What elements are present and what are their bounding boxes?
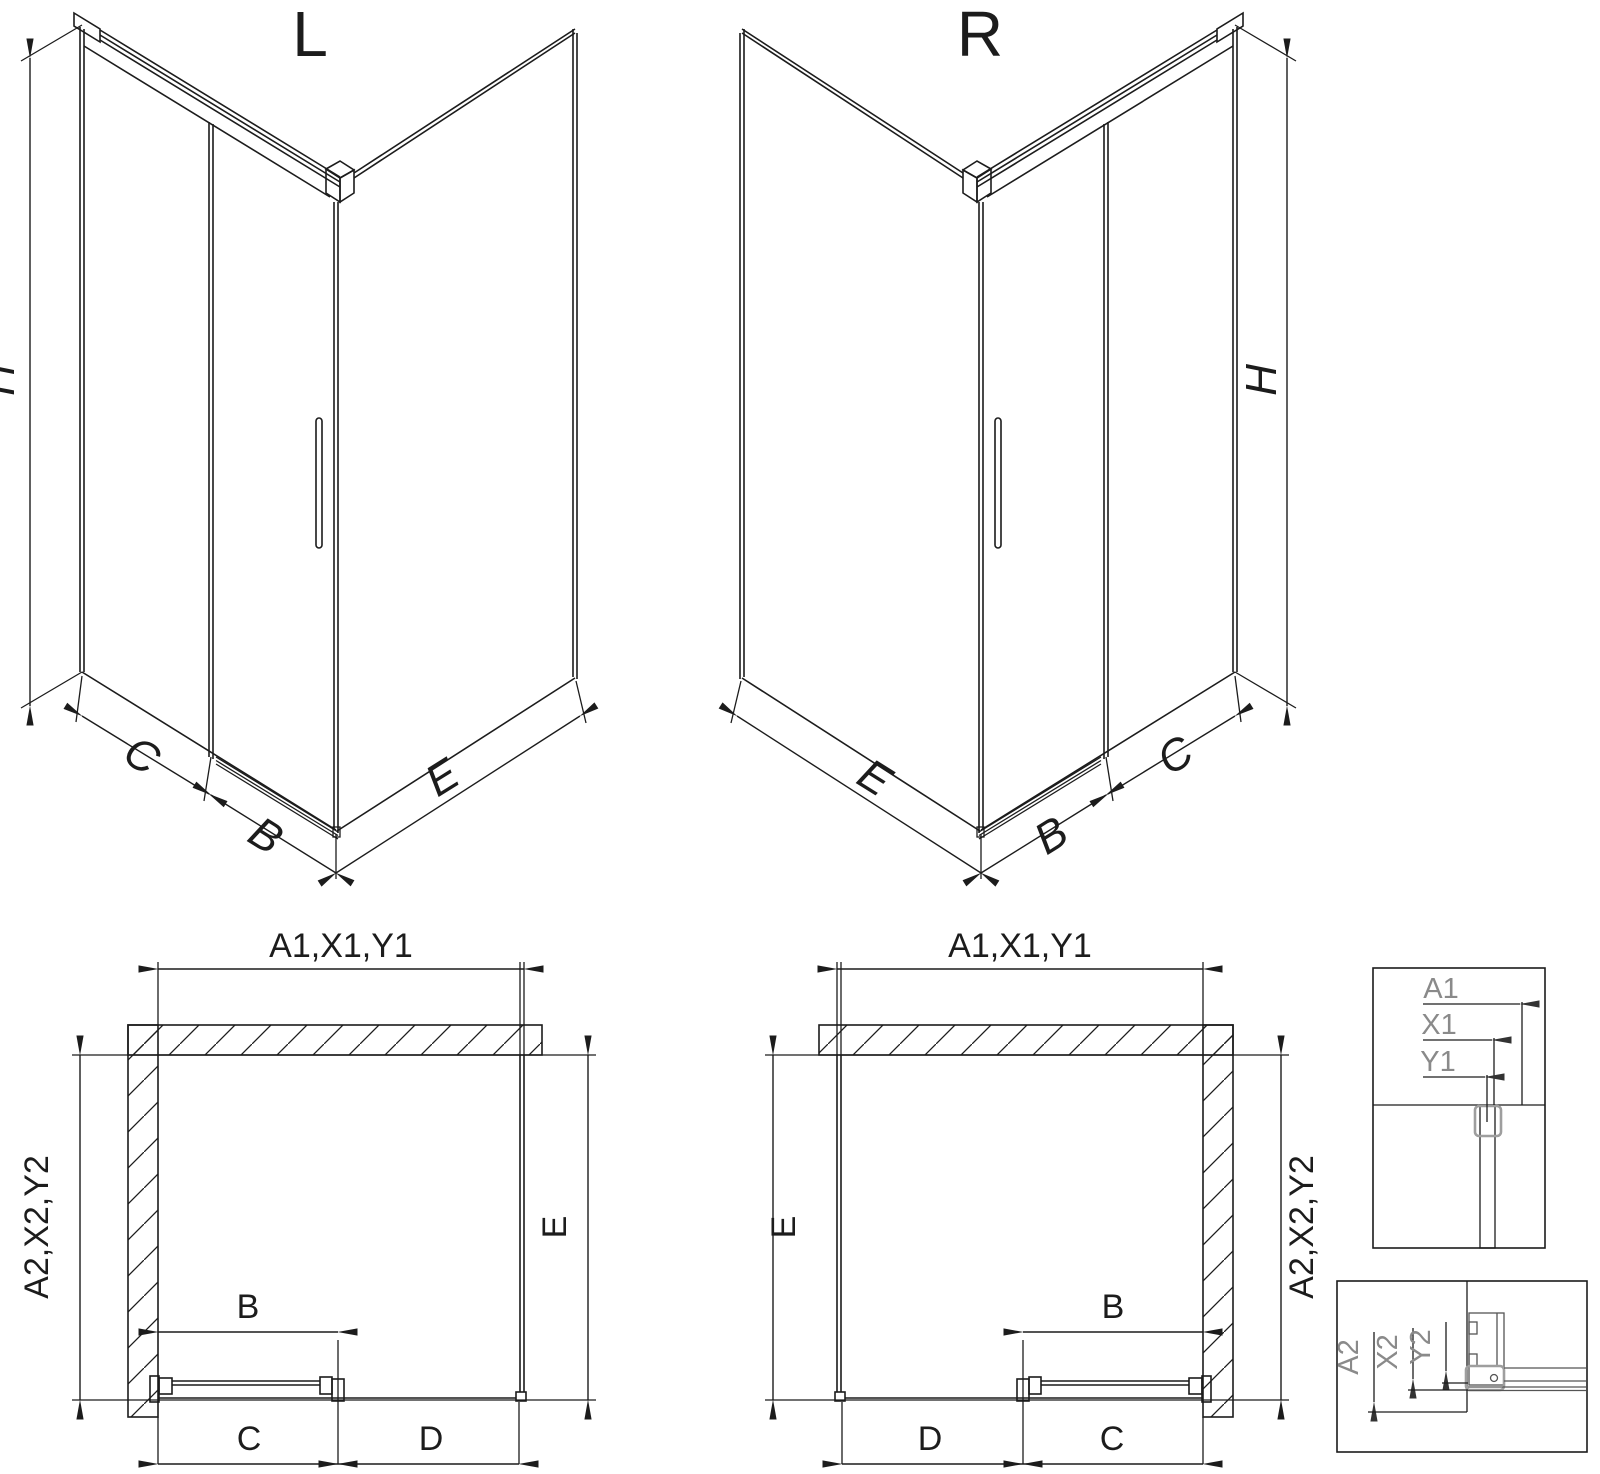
plan-left-d-dim: D (419, 1420, 444, 1458)
plan-left-door-dim: B (237, 1288, 260, 1326)
plan-left-top-dim: A1,X1,Y1 (269, 927, 413, 965)
detail-y2-label: Y2 (1405, 1329, 1437, 1364)
technical-drawing: L H C B E R H E B C A1,X1,Y1 A2,X2,Y2 E … (0, 0, 1600, 1474)
plan-right-right-dim: A2,X2,Y2 (1283, 1155, 1321, 1299)
plan-right-d-dim: D (918, 1420, 943, 1458)
detail-top-frame (1373, 968, 1545, 1248)
iso-view-left: L H C B E (0, 0, 586, 879)
dim-label-side-left: E (417, 749, 468, 806)
detail-x2-label: X2 (1372, 1334, 1404, 1369)
dim-label-side-right: E (849, 749, 900, 806)
profile-notch-top (1469, 1322, 1477, 1334)
variant-label-left: L (292, 0, 328, 70)
plan-view-left: A1,X1,Y1 A2,X2,Y2 E B C D (18, 927, 596, 1464)
door-profile-section (1469, 1313, 1504, 1385)
iso-view-right: R H E B C (731, 0, 1296, 879)
plan-view-right: A1,X1,Y1 A2,X2,Y2 E B D C (765, 927, 1321, 1464)
detail-x1-label: X1 (1421, 1009, 1456, 1041)
dim-label-height-left: H (0, 364, 24, 396)
detail-a1-label: A1 (1423, 973, 1458, 1005)
detail-baselines (1368, 1383, 1468, 1412)
plan-left-side-dim: E (536, 1216, 574, 1239)
plan-left-c-dim: C (237, 1420, 262, 1458)
plan-right-c-dim: C (1100, 1420, 1125, 1458)
detail-top-clamp (1475, 1106, 1501, 1136)
iso-right-geometry (731, 13, 1296, 879)
installation-drawing-sheet: L H C B E R H E B C A1,X1,Y1 A2,X2,Y2 E … (0, 0, 1600, 1474)
wall-hatch-left (128, 1025, 158, 1417)
plan-left-left-dim: A2,X2,Y2 (18, 1155, 56, 1299)
plan-right-door-dim: B (1102, 1288, 1125, 1326)
iso-left-geometry (21, 13, 586, 879)
variant-label-right: R (957, 0, 1003, 70)
detail-y1-label: Y1 (1420, 1046, 1455, 1078)
dim-label-door-right: B (1026, 807, 1077, 864)
detail-top-wall-profile (1480, 1105, 1495, 1248)
wall-hatch-top-right-plan (819, 1025, 1233, 1055)
wall-hatch-right (1203, 1025, 1233, 1417)
detail-bottom: A2 X2 Y2 (1333, 1281, 1587, 1452)
rail-lines (1468, 1368, 1586, 1391)
plan-right-side-dim: E (765, 1216, 803, 1239)
roller-wheel (1491, 1375, 1498, 1382)
plan-right-top-dim: A1,X1,Y1 (948, 927, 1092, 965)
detail-top: A1 X1 Y1 (1373, 968, 1545, 1248)
dim-label-height-right: H (1237, 364, 1286, 396)
dim-label-fixed-right: C (1149, 726, 1203, 785)
profile-notch-bottom (1469, 1354, 1477, 1366)
dim-label-door-left: B (240, 807, 291, 864)
wall-hatch-top (128, 1025, 542, 1055)
dim-label-fixed-left: C (115, 727, 169, 786)
detail-a2-label: A2 (1333, 1339, 1365, 1374)
